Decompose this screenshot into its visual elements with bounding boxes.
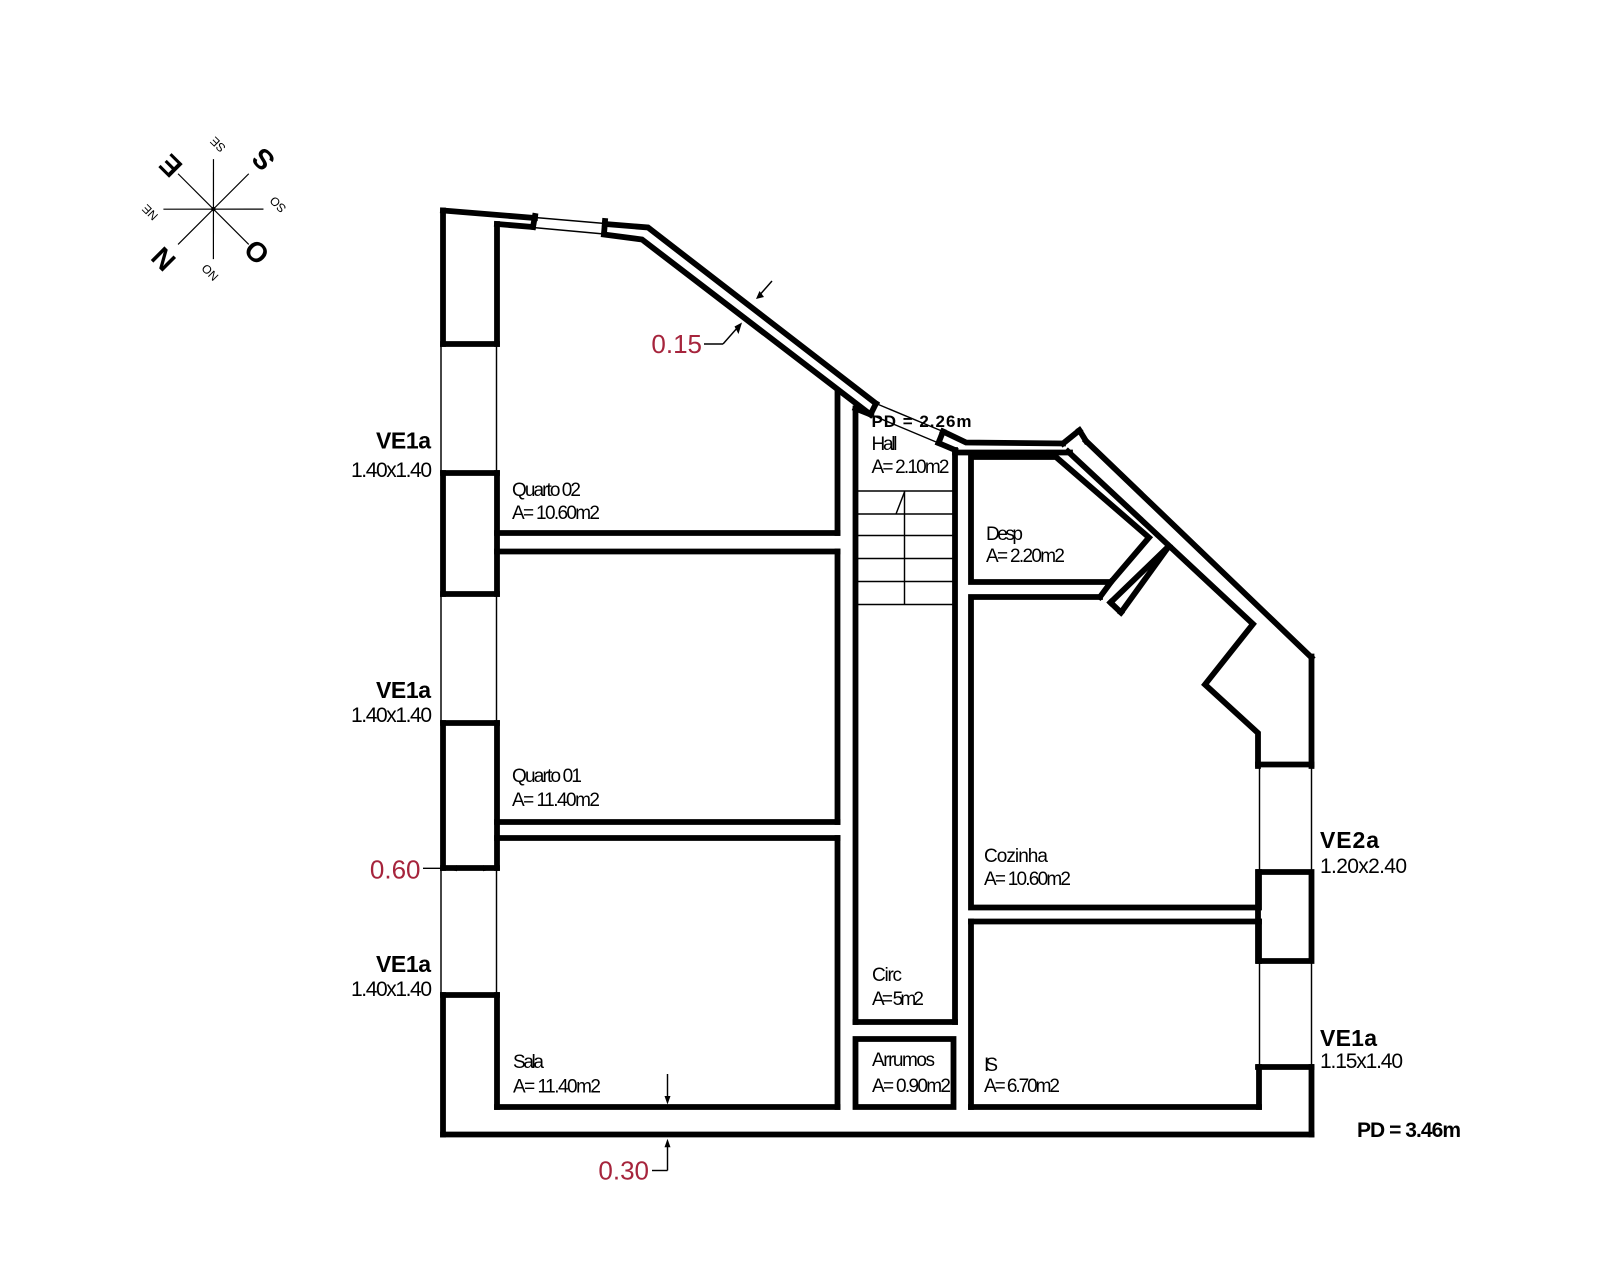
svg-text:IS: IS [984, 1055, 998, 1076]
svg-text:A= 5m2: A= 5m2 [872, 989, 924, 1010]
svg-text:Arrumos: Arrumos [872, 1050, 935, 1071]
svg-text:0.30: 0.30 [598, 1156, 649, 1186]
svg-text:Circ: Circ [872, 965, 902, 986]
svg-text:PD = 3.46m: PD = 3.46m [1357, 1119, 1461, 1142]
svg-text:VE1a: VE1a [376, 677, 431, 703]
svg-text:Sala: Sala [513, 1052, 544, 1073]
svg-text:1.40x1.40: 1.40x1.40 [351, 978, 432, 1001]
svg-text:Desp: Desp [986, 524, 1023, 545]
svg-text:0.60: 0.60 [370, 855, 421, 885]
svg-text:1.40x1.40: 1.40x1.40 [351, 704, 432, 727]
svg-text:VE1a: VE1a [376, 951, 431, 977]
svg-text:A= 11.40m2: A= 11.40m2 [512, 790, 600, 811]
svg-text:A= 0.90m2: A= 0.90m2 [872, 1076, 951, 1097]
svg-text:VE1a: VE1a [1320, 1025, 1377, 1051]
svg-text:VE1a: VE1a [376, 428, 431, 454]
svg-text:A= 10.60m2: A= 10.60m2 [512, 503, 600, 524]
svg-text:1.20x2.40: 1.20x2.40 [1320, 855, 1407, 878]
svg-text:1.40x1.40: 1.40x1.40 [351, 459, 432, 482]
svg-text:A= 2.10m2: A= 2.10m2 [872, 457, 950, 478]
svg-text:Hall: Hall [872, 434, 898, 455]
svg-text:Cozinha: Cozinha [984, 846, 1048, 867]
svg-text:A= 6.70m2: A= 6.70m2 [984, 1076, 1060, 1097]
svg-text:A= 2.20m2: A= 2.20m2 [986, 546, 1065, 567]
svg-text:A= 10.60m2: A= 10.60m2 [984, 869, 1071, 890]
svg-text:A= 11.40m2: A= 11.40m2 [513, 1077, 601, 1098]
svg-text:Quarto 02: Quarto 02 [512, 480, 581, 501]
svg-text:0.15: 0.15 [651, 329, 702, 359]
svg-text:VE2a: VE2a [1320, 827, 1379, 853]
svg-text:PD = 2.26m: PD = 2.26m [872, 412, 972, 431]
svg-text:Quarto 01: Quarto 01 [512, 766, 582, 787]
svg-text:1.15x1.40: 1.15x1.40 [1320, 1050, 1403, 1073]
